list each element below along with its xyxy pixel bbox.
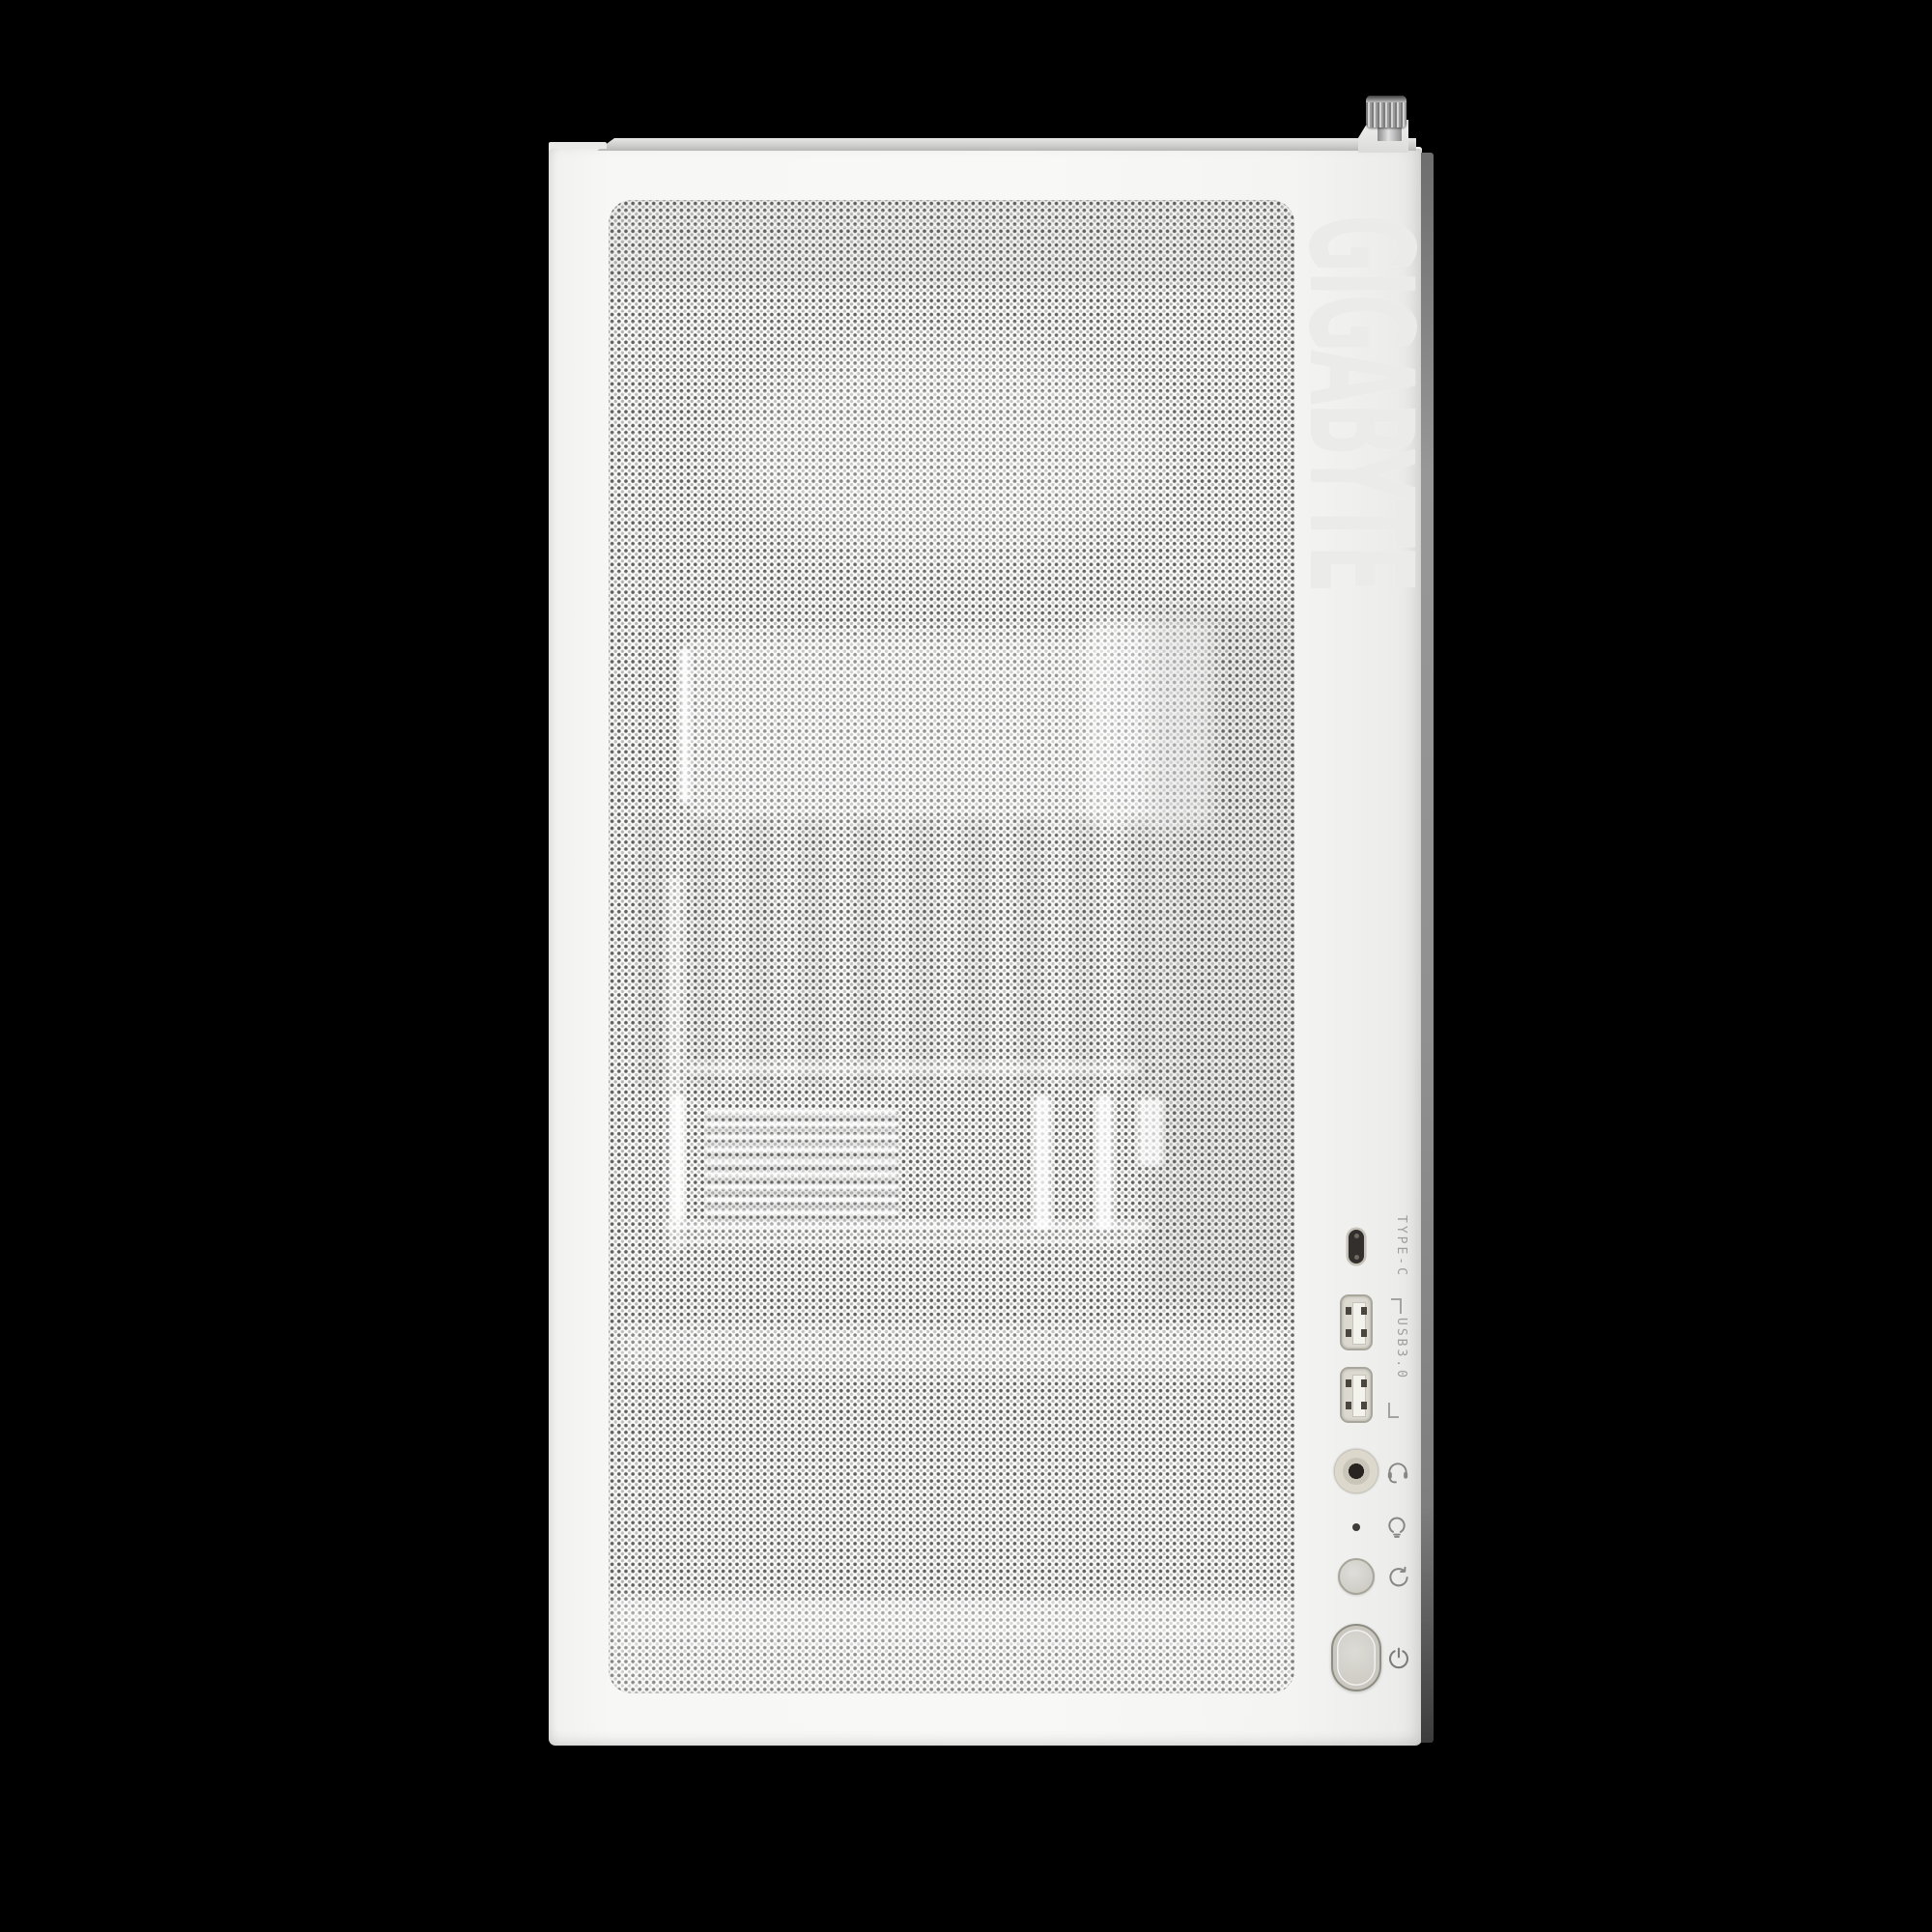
usb-ports-label: USB3.0 [1383,1318,1408,1410]
thumbscrew-stem [1378,126,1402,141]
pc-case-front-panel: GIGABYTE TYPE-C USB3.0 [549,147,1422,1746]
typec-port-label: TYPE-C [1383,1215,1408,1304]
power-button [1331,1624,1381,1691]
usb-label-bracket-top [1391,1298,1402,1314]
power-button-face [1337,1630,1376,1686]
product-photo-stage: GIGABYTE TYPE-C USB3.0 [0,0,1932,1932]
case-top-left-step [549,142,607,149]
usb-pin [1361,1402,1367,1409]
audio-combo-jack [1334,1449,1378,1493]
usb3-port-bottom [1340,1367,1373,1423]
usb-pin [1346,1402,1351,1409]
led-indicator [1352,1523,1360,1531]
mesh-front-panel [609,200,1294,1693]
usb-pin [1361,1329,1367,1337]
case-top-lip [597,138,1416,151]
reset-icon [1385,1564,1412,1591]
usb3-port-top [1340,1294,1373,1350]
led-icon [1383,1512,1410,1539]
headset-icon [1384,1458,1411,1485]
usb-pin [1346,1379,1351,1387]
usb-pin [1346,1329,1351,1337]
usb-type-c-port [1349,1230,1364,1264]
thumbscrew [1366,96,1406,128]
usb-pin [1346,1307,1351,1315]
reset-button [1338,1558,1375,1595]
usb-pin [1361,1307,1367,1315]
brand-text: GIGABYTE [1293,214,1428,668]
usb-label-bracket-bottom [1388,1403,1399,1418]
usb-pin [1361,1379,1367,1387]
mesh-row-sheen [609,200,1294,1693]
power-icon [1385,1645,1412,1672]
